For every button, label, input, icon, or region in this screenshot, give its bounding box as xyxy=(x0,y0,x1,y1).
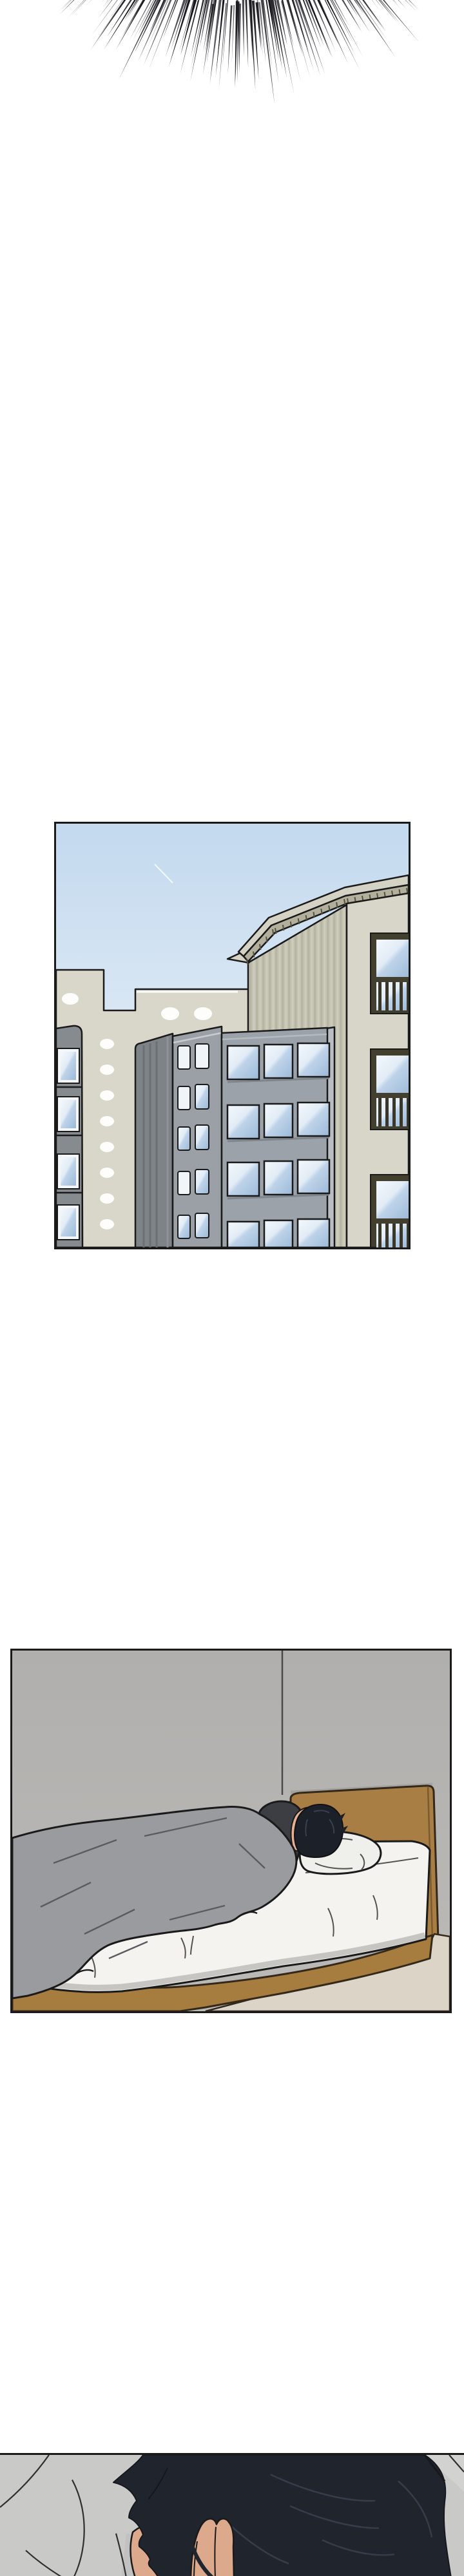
balcony-window xyxy=(371,1049,411,1130)
comic-page xyxy=(0,0,464,2576)
right-building xyxy=(347,893,411,1247)
window-band xyxy=(227,1103,329,1141)
balcony-window xyxy=(371,933,411,1014)
window-band xyxy=(227,1043,329,1082)
panel-closeup xyxy=(0,2453,464,2576)
speed-lines-group xyxy=(35,0,447,105)
middle-building xyxy=(222,1027,334,1247)
window-band xyxy=(227,1219,329,1247)
left-dark-building xyxy=(56,1026,82,1247)
panel-cityscape xyxy=(54,822,411,1249)
window-band xyxy=(227,1160,329,1198)
speed-lines-effect xyxy=(0,0,464,129)
balcony-window xyxy=(371,1175,411,1247)
panel-bedroom xyxy=(10,1649,452,2013)
paired-window-building xyxy=(173,1027,222,1247)
closeup-hair xyxy=(113,2455,451,2576)
striped-building xyxy=(135,1034,173,1247)
